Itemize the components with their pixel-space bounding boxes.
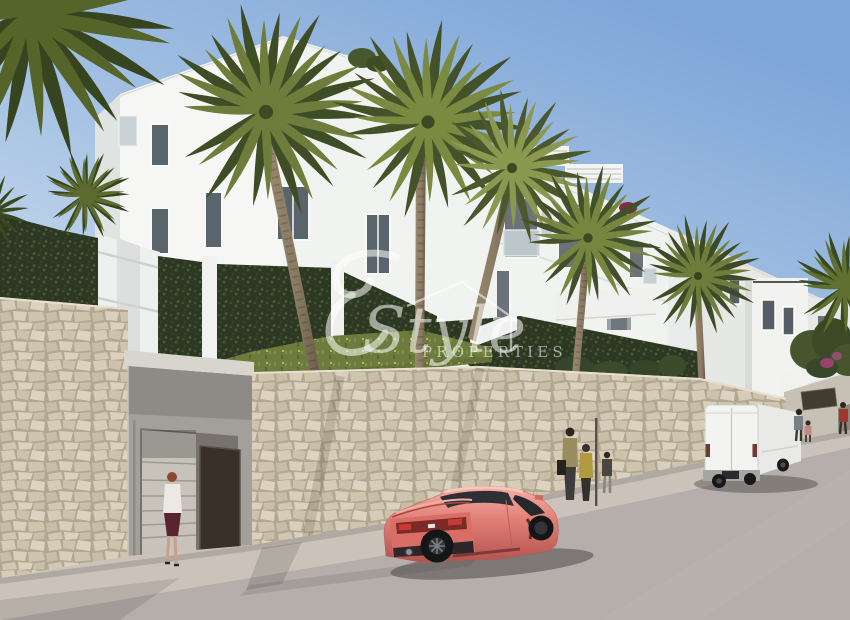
van-taillight: [753, 444, 758, 457]
hedge-column: [158, 256, 202, 370]
van-taillight: [706, 444, 711, 457]
jacket: [579, 453, 593, 478]
terrace-pillar: [202, 256, 217, 368]
scene-canvas: Style PROPERTIES: [0, 0, 850, 620]
entrance-sign: [801, 388, 837, 410]
roof-glass-railing: [119, 116, 137, 146]
bougainvillea: [820, 358, 834, 368]
sign-pole: [595, 418, 597, 506]
window: [151, 124, 169, 166]
window: [205, 192, 222, 248]
head: [167, 472, 177, 482]
car-reverse-light: [428, 524, 435, 528]
van-hubcap: [781, 463, 786, 468]
stone-wall-left: [0, 297, 128, 578]
car-taillight: [399, 524, 411, 531]
shirt: [602, 459, 612, 476]
head: [582, 444, 590, 452]
balcony-glass-railing: [643, 268, 657, 284]
bag: [557, 460, 566, 475]
blouse: [163, 484, 182, 513]
car-taillight: [448, 519, 462, 526]
entrance-door: [200, 446, 240, 554]
car-rim: [535, 522, 548, 535]
window: [151, 208, 169, 254]
head: [840, 402, 846, 408]
head: [796, 409, 802, 415]
shirt: [794, 416, 803, 430]
property-render: Style PROPERTIES: [0, 0, 850, 620]
window: [762, 300, 775, 330]
window: [783, 307, 794, 335]
car-exhaust: [406, 549, 413, 556]
head: [604, 452, 610, 458]
van-wheel: [744, 473, 756, 485]
stair-shadow: [142, 430, 196, 458]
head: [566, 428, 575, 437]
shirt: [839, 409, 848, 422]
volume-side: [745, 278, 752, 399]
head: [805, 420, 810, 425]
skirt: [164, 513, 181, 536]
shirt: [805, 426, 812, 435]
stair-entrance: [124, 350, 254, 560]
bougainvillea: [832, 352, 842, 360]
logo-caps-text: PROPERTIES: [422, 343, 567, 361]
bush: [658, 355, 686, 377]
van-hubcap: [716, 478, 722, 484]
railing-post: [133, 420, 135, 556]
